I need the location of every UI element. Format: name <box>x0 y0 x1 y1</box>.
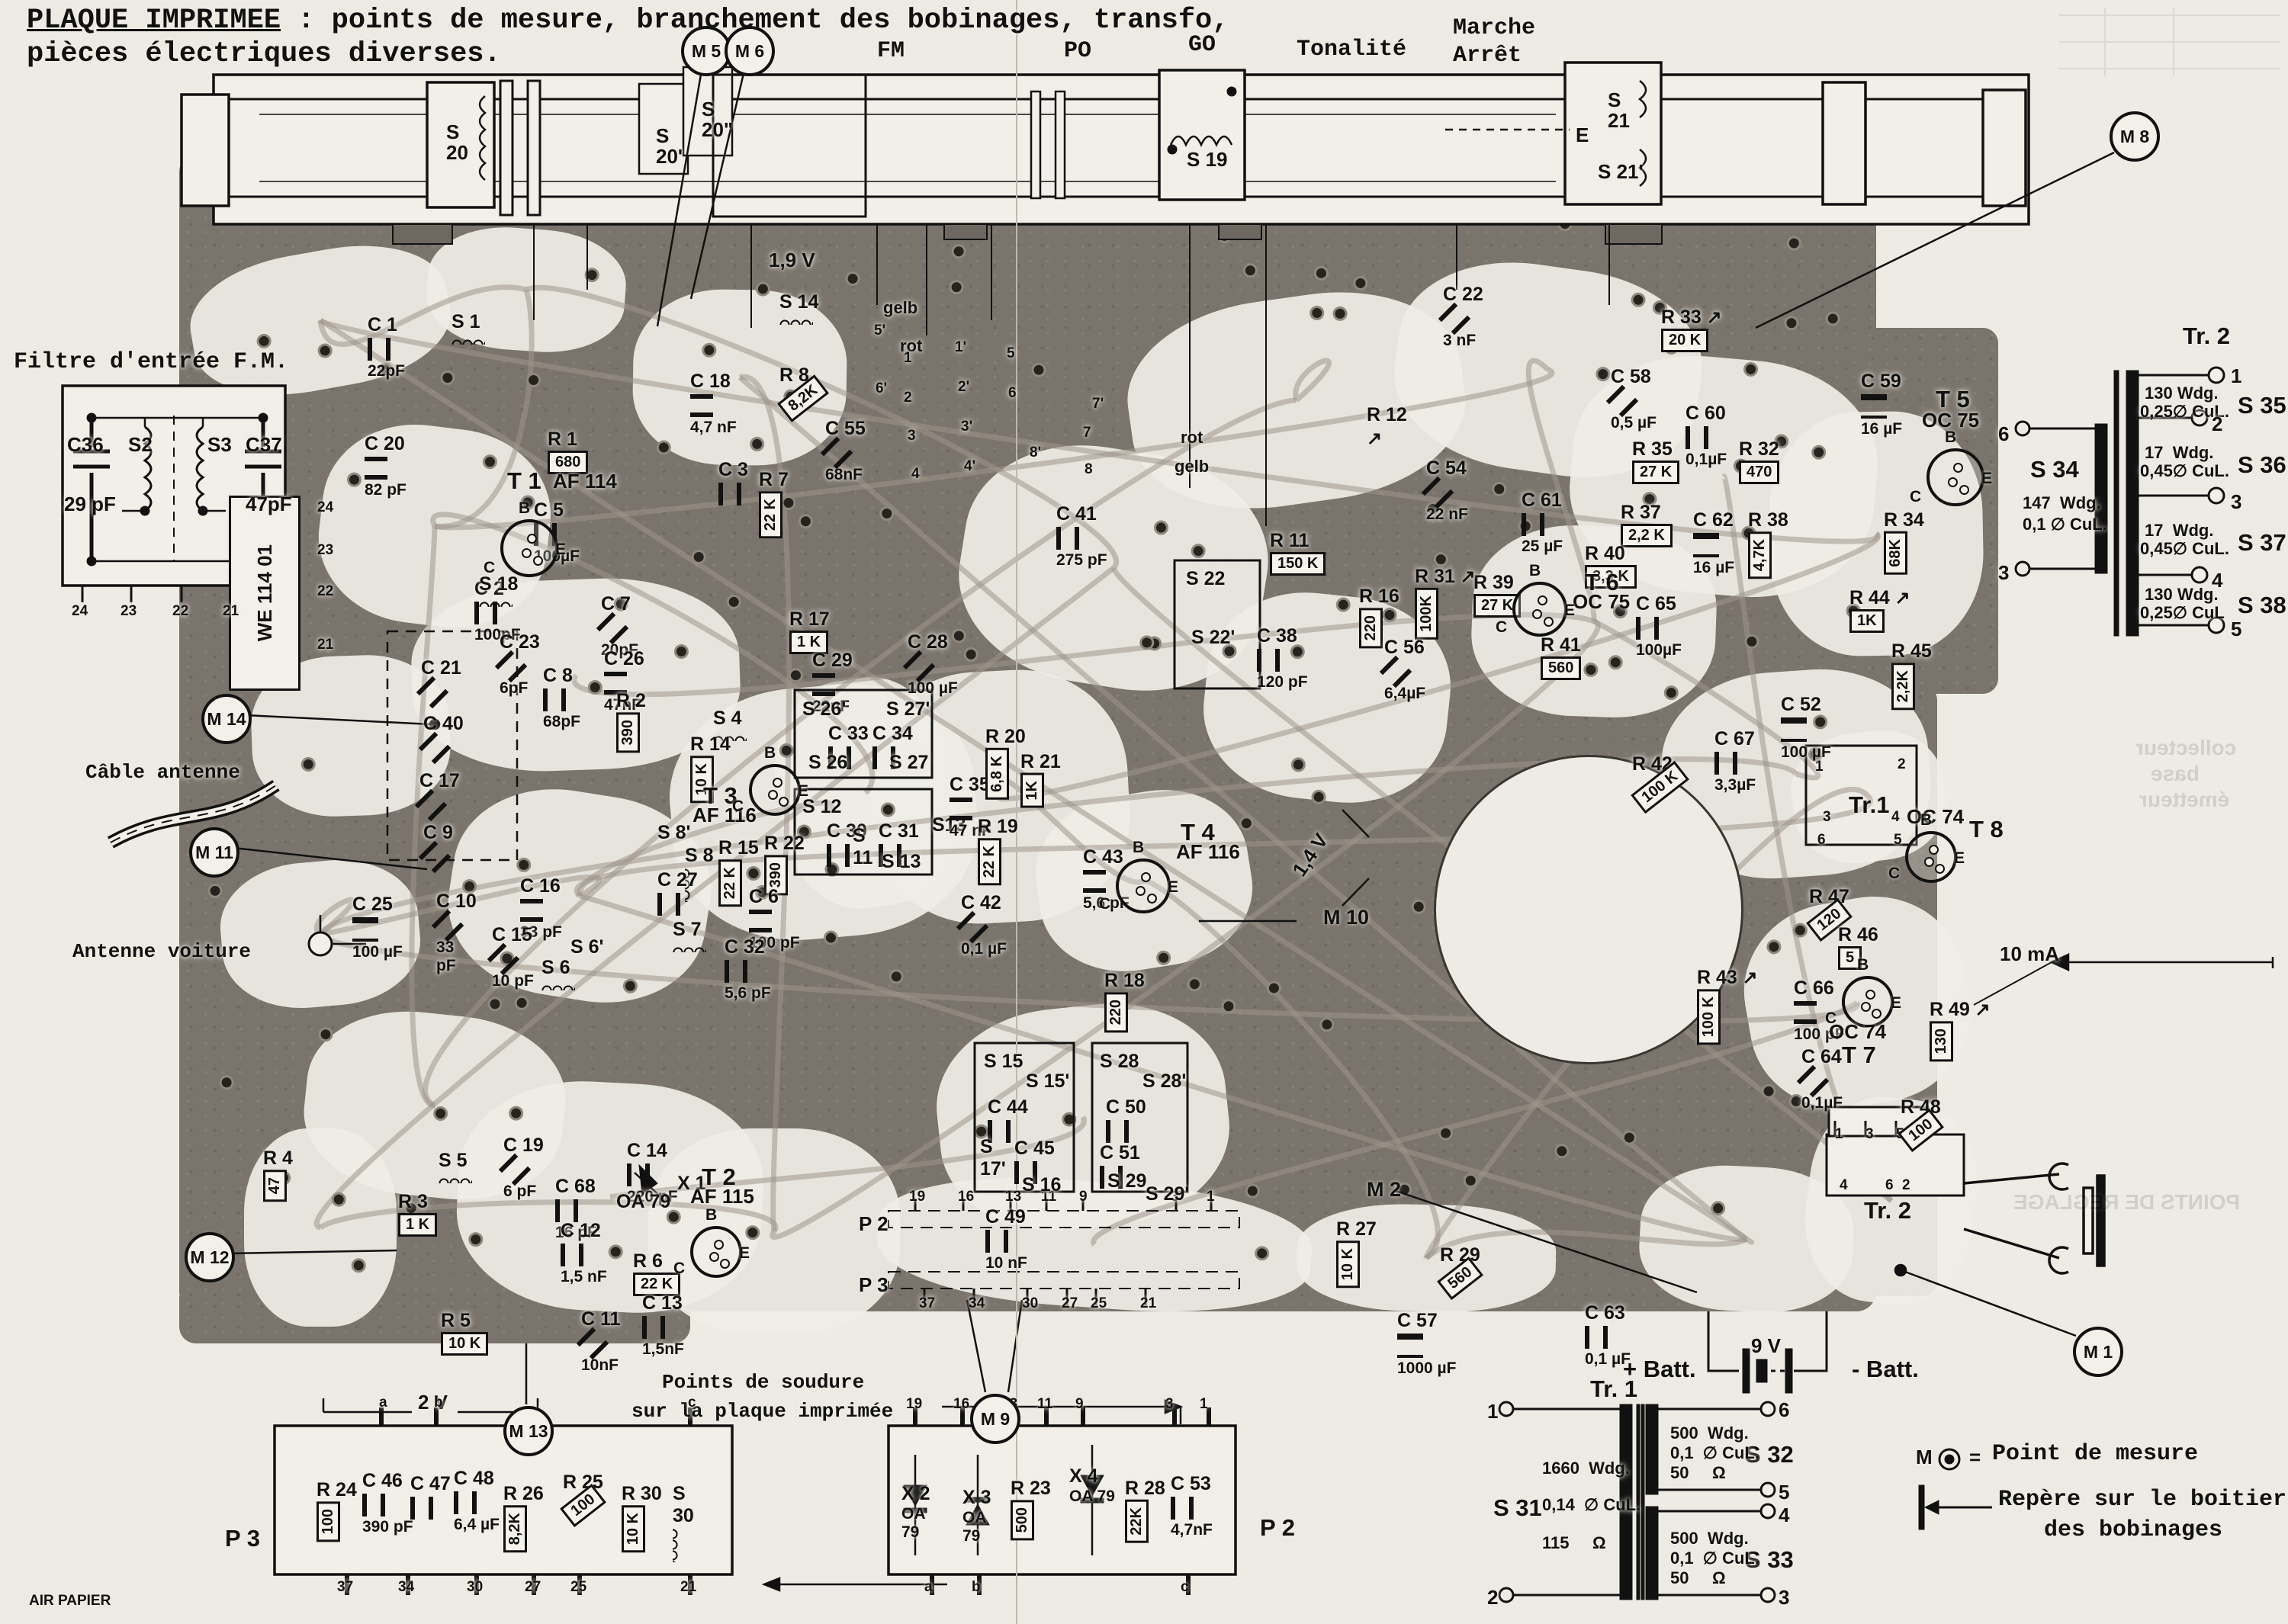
transistor-t-3-type: AF 116 <box>693 805 757 826</box>
measure-point-m-8: M 8 <box>2110 111 2160 162</box>
component-label: R 22 <box>764 833 805 855</box>
component-r-27: R 2710 K <box>1336 1218 1377 1292</box>
component-label: C 33 <box>828 723 869 745</box>
transistor-t-4-circle <box>1116 859 1171 913</box>
text-fm: FM <box>877 40 905 64</box>
component-c-64: C 640,1µF <box>1801 1046 1843 1112</box>
text-4: 4' <box>964 459 975 474</box>
transistor-lead-dot <box>527 534 537 544</box>
text-6: 6 <box>1817 833 1826 848</box>
text-tr-2: Tr. 2 <box>2183 324 2230 349</box>
component-r-11: R 11150 K <box>1270 530 1326 576</box>
component-label: C 27 <box>657 869 698 891</box>
component-label: S 26 <box>808 752 847 774</box>
transistor-terminal-e: E <box>1564 602 1575 620</box>
component-r-18: R 18220 <box>1104 970 1145 1036</box>
coil-icon <box>439 1173 472 1183</box>
component-label: C 65 <box>1636 593 1682 615</box>
text-16: 16 <box>958 1189 974 1205</box>
component-c-61: C 6125 µF <box>1522 489 1563 556</box>
component-label: C 8 <box>543 665 580 687</box>
capacitor-icon <box>1422 477 1454 509</box>
component-value: 275 pF <box>1056 551 1107 570</box>
text-s-19: S 19 <box>1187 149 1228 170</box>
component-label: C 49 <box>985 1206 1027 1228</box>
transistor-lead-dot <box>1929 845 1939 855</box>
component-c-52: C 52100 µF <box>1781 694 1831 762</box>
component-label: C 17 <box>419 770 460 792</box>
text-metteur: émetteur <box>2139 788 2229 810</box>
component-label: R 28 <box>1125 1478 1165 1500</box>
component-x-4: X 4OA 79 <box>1069 1465 1115 1506</box>
component-s-1: S 1 <box>451 311 485 346</box>
text-2: 2' <box>958 380 969 395</box>
capacitor-icon <box>1106 1120 1129 1143</box>
component-value: 1000 µF <box>1397 1359 1456 1378</box>
text-25: 25 <box>570 1580 586 1595</box>
potentiometer-arrow-icon: ↗ <box>1737 968 1758 988</box>
capacitor-icon <box>419 841 451 873</box>
component-label: S 17' <box>980 1136 1006 1180</box>
transistor-t-6-type: OC 75 <box>1573 592 1630 612</box>
capacitor-icon <box>419 732 451 764</box>
component-label: C 7 <box>601 593 638 615</box>
component-value: 100 <box>317 1501 340 1542</box>
text-go: GO <box>1188 34 1216 58</box>
component-value: 4,7nF <box>1171 1521 1213 1539</box>
measure-point-m-2: M 2 <box>1367 1178 1401 1202</box>
component-label: S 16 <box>1022 1174 1061 1196</box>
component-s-27: S 27 <box>889 752 928 774</box>
transistor-terminal-b: B <box>1857 956 1869 974</box>
text-c: c <box>1181 1580 1189 1595</box>
text-7: 7 <box>1083 425 1091 441</box>
text-50: 50 Ω <box>1670 1464 1726 1481</box>
component-label: R 46 <box>1838 924 1878 946</box>
transistor-t-8-type: OC 74 <box>1907 807 1964 827</box>
component-r-37: R 372,2 K <box>1621 502 1673 547</box>
component-c-1: C 122pF <box>368 314 405 380</box>
text-filtre-d-entr-e-f-m: Filtre d'entrée F.M. <box>14 351 288 375</box>
text-gelb: gelb <box>883 299 917 316</box>
component-s-11: S 11 <box>853 825 872 869</box>
component-label: C 53 <box>1171 1473 1213 1495</box>
text-s-34: S 34 <box>2030 457 2079 483</box>
text-2: 2 <box>2212 414 2222 435</box>
potentiometer-arrow-icon: ↗ <box>1702 307 1722 328</box>
component-label: R 2 <box>616 690 646 712</box>
component-value: 100 µF <box>908 679 958 698</box>
component-c-59: C 5916 µF <box>1861 371 1902 438</box>
component-value: 1 K <box>398 1213 437 1237</box>
transistor-lead-dot <box>1924 857 1934 867</box>
component-value: 47 <box>263 1170 287 1202</box>
transistor-t-2-type: AF 115 <box>690 1186 754 1207</box>
component-label: R 1 <box>548 428 588 451</box>
component-value: 20 K <box>1661 329 1708 352</box>
component-value: 390 pF <box>362 1518 413 1536</box>
text-23: 23 <box>317 543 333 558</box>
capacitor-icon <box>416 676 448 708</box>
component-c-19: C 196 pF <box>503 1135 544 1201</box>
component-label: R 45 <box>1891 640 1932 663</box>
component-label: R 31 ↗ <box>1415 566 1476 588</box>
page-title-line2: pièces électriques diverses. <box>27 40 501 69</box>
capacitor-icon <box>1797 1065 1829 1097</box>
text-s-20: S 20' <box>656 126 683 168</box>
component-label: C 63 <box>1585 1302 1631 1324</box>
component-c-32: C 325,6 pF <box>725 936 771 1003</box>
component-r-20: R 206,8 K <box>985 726 1026 804</box>
transistor-terminal-e: E <box>1954 849 1965 868</box>
text-c36: C36 <box>67 435 104 455</box>
text-des-bobinages: des bobinages <box>2044 1519 2222 1543</box>
coil-icon <box>541 980 575 990</box>
capacitor-icon <box>690 394 713 417</box>
component-label: S 15 <box>984 1051 1023 1073</box>
transistor-terminal-b: B <box>1945 428 1956 447</box>
component-label: S 26' <box>802 698 846 721</box>
component-value: 100µF <box>1636 641 1682 660</box>
component-r-35: R 3527 K <box>1632 438 1679 484</box>
text-points-de-soudure: Points de soudure <box>662 1372 864 1393</box>
component-value: 220 <box>1104 992 1128 1032</box>
component-label: C 51 <box>1100 1142 1140 1164</box>
component-value: 22 K <box>978 838 1001 885</box>
text-13: 13 <box>1005 1189 1021 1205</box>
component-r-34: R 3468K <box>1884 509 1924 579</box>
text-3: 3 <box>1165 1397 1174 1412</box>
component-c-38: C 38120 pF <box>1257 625 1308 692</box>
component-c-60: C 600,1µF <box>1685 403 1727 469</box>
component-label: C 67 <box>1714 728 1756 750</box>
transistor-terminal-c: C <box>732 798 744 816</box>
component-label: C 60 <box>1685 403 1727 425</box>
component-c-47: C 47 <box>410 1473 451 1521</box>
component-value: 0,5 µF <box>1611 414 1657 432</box>
text-27: 27 <box>525 1580 541 1595</box>
component-label: C 68 <box>555 1176 597 1198</box>
component-c-22: C 223 nF <box>1443 284 1483 350</box>
component-value: 25 µF <box>1522 538 1563 556</box>
component-label: C 16 <box>520 875 562 897</box>
we-114-01-module: WE 114 01 <box>229 496 300 691</box>
component-label: C 52 <box>1781 694 1831 716</box>
component-label: R 7 <box>759 469 789 491</box>
component-value: 4,7 nF <box>690 419 737 437</box>
capacitor-icon <box>561 1244 583 1266</box>
component-r-45: R 452,2K <box>1891 640 1932 714</box>
component-label: C 54 <box>1426 457 1468 480</box>
transistor-terminal-e: E <box>555 541 566 559</box>
component-value: OA 79 <box>1069 1488 1115 1506</box>
component-value: 100K <box>1415 588 1438 640</box>
component-value: 10 K <box>441 1332 488 1356</box>
component-label: R 44 ↗ <box>1849 587 1910 609</box>
transistor-lead-dot <box>1141 872 1151 882</box>
component-s-13: S 13 <box>882 851 921 873</box>
text-s-31: S 31 <box>1493 1496 1542 1521</box>
component-label: R 26 <box>503 1483 544 1505</box>
component-label: C 64 <box>1801 1046 1843 1068</box>
component-label: C 5 <box>534 499 580 522</box>
component-s-27: S 27' <box>886 698 930 721</box>
component-r-2: R 2390 <box>616 690 646 756</box>
component-label: S 29 <box>1107 1170 1146 1192</box>
text-b: b <box>434 1395 443 1411</box>
transistor-terminal-e: E <box>739 1244 750 1263</box>
component-c-48: C 486,4 µF <box>454 1468 500 1534</box>
component-s-6: S 6' <box>570 936 603 958</box>
component-c-20: C 2082 pF <box>365 433 407 499</box>
component-label: C 44 <box>988 1096 1028 1119</box>
text-30: 30 <box>1022 1296 1038 1311</box>
capacitor-icon <box>627 1163 650 1186</box>
component-label: R 21 <box>1020 751 1061 773</box>
capacitor-icon <box>577 1327 609 1359</box>
text-5: 5' <box>874 323 885 339</box>
component-label: C 42 <box>961 892 1007 914</box>
component-value: 4,7K <box>1748 531 1772 579</box>
component-label: R 38 <box>1748 509 1788 531</box>
text-5: 5 <box>2231 619 2241 640</box>
component-c-18: C 184,7 nF <box>690 371 737 437</box>
text-p-2: P 2 <box>1260 1516 1295 1541</box>
component-value: 6,8 K <box>985 748 1009 800</box>
text-s3: S3 <box>207 435 232 455</box>
component-value: 0,1 µF <box>1585 1350 1631 1369</box>
component-label: R 11 <box>1270 530 1326 552</box>
potentiometer-arrow-icon: ↗ <box>1970 1000 1991 1020</box>
measure-point-m-13: M 13 <box>503 1406 554 1456</box>
component-value: 0,1µF <box>1685 451 1727 469</box>
component-label: C 29 <box>812 650 853 672</box>
component-value: 1K <box>1020 773 1044 808</box>
component-value: 68K <box>1884 531 1907 575</box>
capacitor-icon <box>821 437 853 469</box>
page-title-underlined: PLAQUE IMPRIMEE <box>27 5 281 37</box>
text-s-20: S 20" <box>702 99 733 141</box>
text-19: 19 <box>906 1397 922 1412</box>
text-19: 19 <box>909 1189 925 1205</box>
text-3: 3 <box>1865 1127 1874 1142</box>
component-label: R 37 <box>1621 502 1673 524</box>
capacitor-icon <box>499 1154 531 1186</box>
capacitor-icon <box>1056 527 1079 550</box>
component-label: C 18 <box>690 371 737 393</box>
transistor-lead-dot <box>533 556 543 566</box>
text-7: 7' <box>1092 396 1104 412</box>
transistor-t-8-circle <box>1905 831 1957 883</box>
transistor-t-1-circle <box>500 519 558 577</box>
component-c-17: C 17 <box>419 770 460 818</box>
component-label: C 43 <box>1083 846 1130 868</box>
text-a: a <box>924 1580 933 1595</box>
text-4: 4 <box>1891 810 1900 825</box>
component-value: 100 µF <box>352 943 403 961</box>
capacitor-icon <box>1861 394 1887 419</box>
text-6: 6 <box>1008 386 1017 401</box>
component-c-42: C 420,1 µF <box>961 892 1007 958</box>
component-s-18: S 18 <box>479 573 518 608</box>
text-27: 27 <box>1062 1296 1078 1311</box>
component-label: S 6' <box>570 936 603 958</box>
component-c-67: C 673,3µF <box>1714 728 1756 794</box>
component-label: C 13 <box>642 1292 684 1314</box>
component-s-15: S 15' <box>1026 1070 1069 1093</box>
text-marche: Marche <box>1453 17 1535 41</box>
component-label: C 23 <box>500 631 540 653</box>
component-value: 27 K <box>1632 461 1679 484</box>
component-label: C 25 <box>352 894 403 916</box>
ghost-table <box>2059 8 2280 76</box>
measure-point-m-10: M 10 <box>1323 906 1369 929</box>
component-value: 16 µF <box>1861 420 1902 438</box>
text-1: 1' <box>955 340 966 355</box>
transistor-lead-dot <box>709 1252 719 1262</box>
text-24: 24 <box>317 500 333 515</box>
coil-icon <box>451 335 485 345</box>
component-value: 130 <box>1930 1021 1953 1061</box>
text-3: 3 <box>1823 810 1831 825</box>
text-s-21: S 21 <box>1608 90 1630 132</box>
text-e: E <box>1576 125 1589 146</box>
component-value: 68pF <box>543 713 580 731</box>
capacitor-icon <box>812 673 835 696</box>
island-23 <box>1296 1202 1557 1314</box>
text-1: 1 <box>1487 1401 1498 1422</box>
component-label: C 48 <box>454 1468 500 1490</box>
capacitor-icon <box>956 911 988 943</box>
component-c-54: C 5422 nF <box>1426 457 1468 524</box>
component-label: C 9 <box>423 822 453 844</box>
text-50: 50 Ω <box>1670 1569 1726 1587</box>
component-label: R 5 <box>441 1310 488 1332</box>
transistor-lead-dot <box>714 1240 724 1250</box>
we-114-01-label: WE 114 01 <box>253 544 277 641</box>
text-500-wdg: 500 Wdg. <box>1670 1424 1749 1442</box>
component-value: 10 K <box>622 1505 645 1552</box>
component-c-8: C 868pF <box>543 665 580 731</box>
measure-point-m-14: M 14 <box>201 694 252 744</box>
component-label: R 3 <box>398 1191 437 1213</box>
transistor-t-4-type: AF 116 <box>1176 842 1240 862</box>
component-label: R 19 <box>978 816 1018 838</box>
capacitor-icon <box>725 960 747 983</box>
component-value: 6,4µF <box>1384 685 1425 703</box>
component-label: S 28 <box>1100 1051 1139 1073</box>
component-label: S 4 <box>713 708 747 730</box>
text-10-ma: 10 mA <box>2000 944 2059 964</box>
component-c-12: C 121,5 nF <box>561 1220 607 1286</box>
text-21: 21 <box>1140 1296 1156 1311</box>
text-1: 1 <box>2231 366 2241 387</box>
text-8: 8 <box>1085 462 1093 477</box>
transistor-terminal-b: B <box>519 499 530 518</box>
capacitor-icon <box>1781 717 1807 742</box>
text-3: 3 <box>1998 563 2009 583</box>
component-label: R 20 <box>985 726 1026 748</box>
text-0-14-cul: 0,14 ∅ CuL. <box>1542 1496 1640 1513</box>
component-c-49: C 4910 nF <box>985 1206 1027 1273</box>
component-s-7: S 7 <box>673 919 706 954</box>
component-c-53: C 534,7nF <box>1171 1473 1213 1539</box>
component-value: 10 pF <box>492 972 534 990</box>
text-1: 1 <box>1835 1127 1843 1142</box>
component-r-49: R 49 ↗130 <box>1930 999 1991 1065</box>
component-c-46: C 46390 pF <box>362 1470 413 1536</box>
component-c-23: C 236pF <box>500 631 540 698</box>
component-label: C 58 <box>1611 366 1657 388</box>
component-label: C 56 <box>1384 637 1425 659</box>
component-s-28: S 28 <box>1100 1051 1139 1073</box>
component-value: 1K <box>1849 609 1885 633</box>
measure-point-m-9: M 9 <box>970 1394 1020 1444</box>
component-value: 100 µF <box>1781 743 1831 762</box>
component-label: R 49 ↗ <box>1930 999 1991 1021</box>
text-1-9-v: 1,9 V <box>769 250 815 271</box>
component-label: C 57 <box>1397 1310 1456 1332</box>
component-r-1: R 1680 <box>548 428 588 474</box>
component-value: 33 pF <box>436 939 477 975</box>
transistor-terminal-e: E <box>798 782 808 801</box>
component-c-56: C 566,4µF <box>1384 637 1425 703</box>
component-r-42: R 42100 K <box>1632 753 1688 799</box>
component-label: R 30 <box>622 1483 662 1505</box>
potentiometer-arrow-icon: ↗ <box>1890 588 1910 608</box>
component-r-38: R 384,7K <box>1748 509 1788 583</box>
capacitor-icon <box>1397 1334 1423 1358</box>
text-air-papier: AIR PAPIER <box>29 1594 111 1609</box>
component-label: R 43 ↗ <box>1697 967 1758 989</box>
text-s-38: S 38 <box>2238 593 2286 618</box>
text-6: 6' <box>876 381 887 396</box>
component-value: 470 <box>1739 461 1779 484</box>
text-17-wdg: 17 Wdg. <box>2145 522 2213 539</box>
component-value: 10 K <box>1336 1240 1360 1288</box>
transistor-terminal-c: C <box>1910 488 1921 506</box>
component-label: X 2 <box>901 1483 930 1505</box>
text-s-35: S 35 <box>2238 393 2286 419</box>
component-s-8: S 8' <box>657 822 690 844</box>
capacitor-icon <box>1794 1001 1817 1024</box>
component-s-17: S 17' <box>980 1136 1006 1180</box>
component-label: R 18 <box>1104 970 1145 992</box>
component-value: 22pF <box>368 362 405 380</box>
component-label: C 46 <box>362 1470 413 1492</box>
component-label: S 15' <box>1026 1070 1069 1093</box>
text-p-3: P 3 <box>225 1526 260 1552</box>
capacitor-icon <box>555 1199 578 1222</box>
text-6: 6 <box>1998 424 2009 445</box>
text-6: 6 <box>1779 1400 1789 1420</box>
transistor-terminal-e: E <box>1981 470 1992 488</box>
component-c-25: C 25100 µF <box>352 894 403 961</box>
component-s-26: S 26' <box>802 698 846 721</box>
component-label: C 21 <box>421 657 461 679</box>
component-s-6: S 6 <box>541 957 575 992</box>
component-s-26: S 26 <box>808 752 847 774</box>
text-3: 3 <box>2231 492 2241 512</box>
component-label: C 6 <box>749 886 800 908</box>
text-b: b <box>972 1580 981 1595</box>
component-value: 6,4 µF <box>454 1516 500 1534</box>
transistor-lead-dot <box>768 790 778 800</box>
text-4: 4 <box>1840 1178 1848 1193</box>
component-label: C 11 <box>581 1308 620 1330</box>
component-r-21: R 211K <box>1020 751 1061 812</box>
text-1: 1 <box>904 351 912 366</box>
